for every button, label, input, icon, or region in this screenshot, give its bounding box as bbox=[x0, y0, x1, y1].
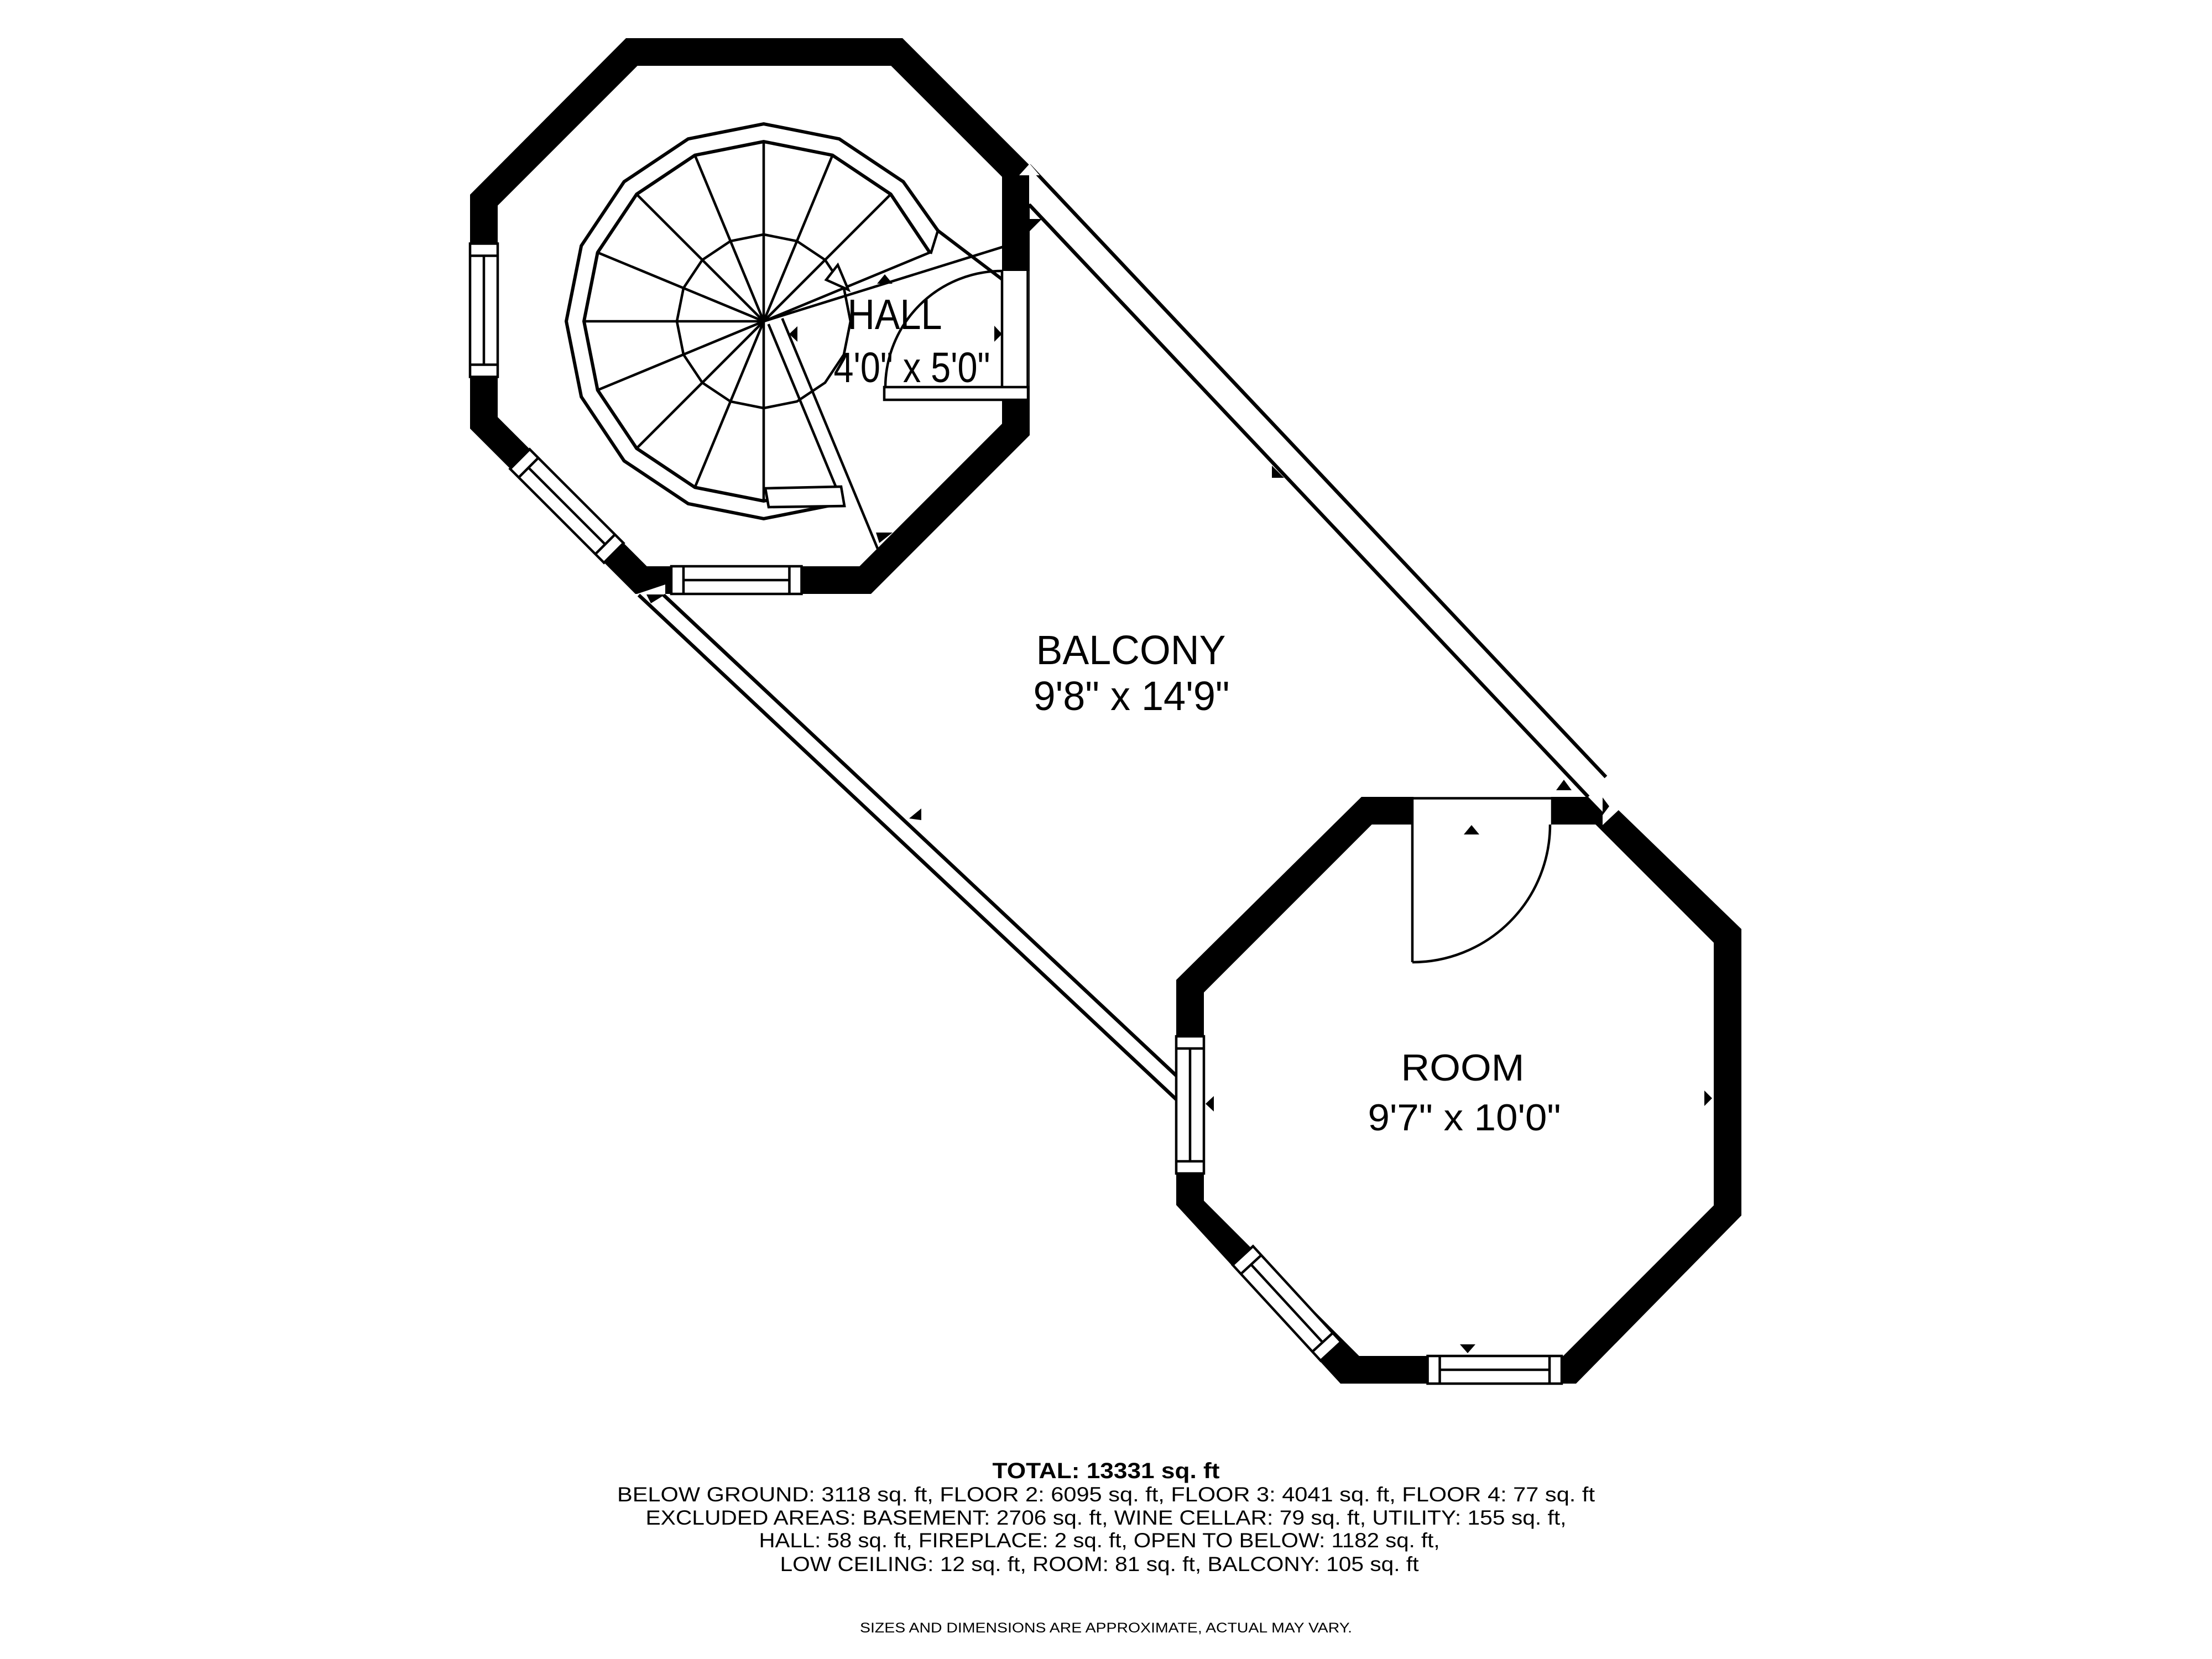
svg-text:BELOW GROUND: 3118 sq. ft, FLO: BELOW GROUND: 3118 sq. ft, FLOOR 2: 6095… bbox=[617, 1483, 1595, 1506]
svg-text:LOW CEILING: 12 sq. ft, ROOM:: LOW CEILING: 12 sq. ft, ROOM: 81 sq. ft,… bbox=[780, 1553, 1420, 1575]
svg-text:4'0" x 5'0": 4'0" x 5'0" bbox=[834, 344, 990, 392]
svg-text:SIZES AND DIMENSIONS ARE APPRO: SIZES AND DIMENSIONS ARE APPROXIMATE, AC… bbox=[860, 1620, 1352, 1636]
svg-text:HALL: 58 sq. ft, FIREPLACE: 2: HALL: 58 sq. ft, FIREPLACE: 2 sq. ft, OP… bbox=[759, 1529, 1440, 1552]
svg-text:9'7" x 10'0": 9'7" x 10'0" bbox=[1368, 1097, 1561, 1139]
svg-text:BALCONY: BALCONY bbox=[1036, 627, 1226, 673]
svg-text:ROOM: ROOM bbox=[1401, 1047, 1525, 1089]
svg-text:9'8" x 14'9": 9'8" x 14'9" bbox=[1034, 673, 1230, 719]
svg-text:TOTAL: 13331 sq. ft: TOTAL: 13331 sq. ft bbox=[993, 1459, 1220, 1483]
svg-text:EXCLUDED AREAS: BASEMENT: 2706: EXCLUDED AREAS: BASEMENT: 2706 sq. ft, W… bbox=[646, 1506, 1567, 1529]
svg-text:HALL: HALL bbox=[848, 291, 942, 338]
